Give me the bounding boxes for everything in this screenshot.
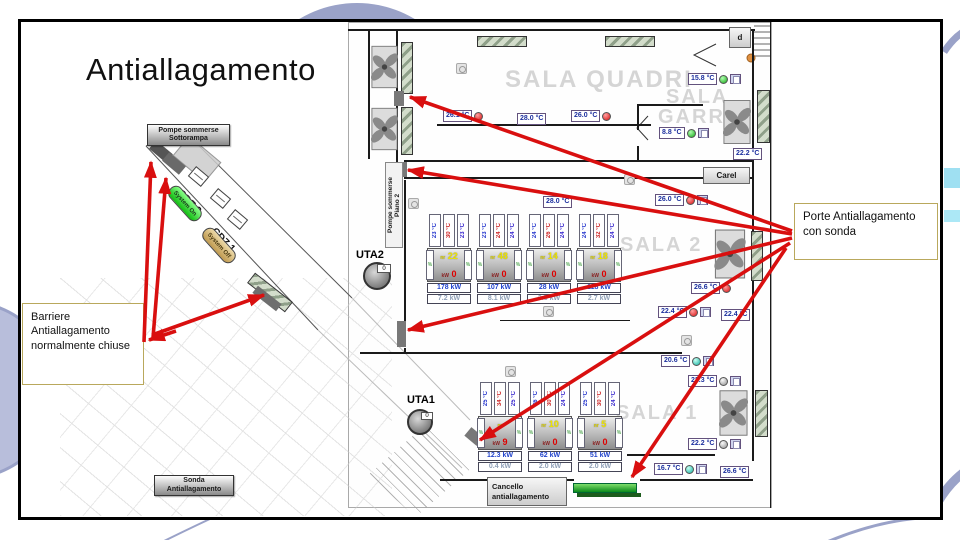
flood-gate-bar xyxy=(573,483,637,493)
status-dot-cyan xyxy=(692,357,701,366)
temperature-value: 22.2 °C xyxy=(733,148,762,160)
fan-pct: % xyxy=(576,250,584,280)
crac-temp-tag: 24 °C xyxy=(558,382,570,415)
crac-temp-tag: 24 °C xyxy=(507,214,519,247)
crac-temp-tag: 25 °C xyxy=(480,382,492,415)
wall-segment xyxy=(404,160,754,162)
wall-segment xyxy=(640,479,753,481)
crac-power-2: 0.4 kW xyxy=(478,462,522,472)
fan-pct: % xyxy=(476,250,484,280)
ack-button xyxy=(730,376,741,386)
crac-unit-sala2: 23 °C24 °C24 °C % % nr 48 kW 0 107 kW 8.… xyxy=(477,214,521,304)
status-dot-red xyxy=(722,284,731,293)
fan-icon xyxy=(371,106,398,152)
fan-pct: % xyxy=(577,418,585,448)
crac-temp-tag: 24 °C xyxy=(557,214,569,247)
uta1-label: UTA1 xyxy=(407,394,435,406)
ack-button xyxy=(730,74,741,84)
wall-segment xyxy=(404,180,406,322)
wall-segment xyxy=(348,29,398,31)
crac-body: % % nr 5 kW 0 xyxy=(578,416,622,450)
quadro-d-plate: d xyxy=(729,27,751,48)
crac-kw-now: kW 9 xyxy=(487,437,513,447)
crac-power-1: 28 kW xyxy=(527,283,571,293)
crac-setpoint: nr 18 xyxy=(586,251,612,261)
device-icon xyxy=(456,63,467,74)
temperature-value: 26.6 °C xyxy=(720,466,749,478)
crac-temp-tag: 24 °C xyxy=(493,214,505,247)
temperature-value: 8.8 °C xyxy=(659,127,685,139)
vent-grille xyxy=(477,36,527,47)
crac-unit-sala2: 24 °C26 °C24 °C % % nr 14 kW 0 28 kW 3.5… xyxy=(527,214,571,304)
wall-segment xyxy=(395,29,755,31)
crac-setpoint: nr 48 xyxy=(486,251,512,261)
wall-segment xyxy=(637,104,639,130)
status-dot-red xyxy=(602,112,611,121)
temperature-value: 26.0 °C xyxy=(655,194,684,206)
crac-temp-tag: 32 °C xyxy=(593,214,605,247)
wall-segment xyxy=(637,146,639,162)
room-watermark: SALA QUADRI xyxy=(505,66,693,94)
fan-pct: % xyxy=(464,250,472,280)
temperature-widget: 22.2 °C xyxy=(688,438,741,450)
temperature-value: 22.2 °C xyxy=(688,438,717,450)
temperature-value: 22.4 °C xyxy=(721,309,750,321)
pompe-piano2-plate: Pompe sommerse Piano 2 xyxy=(385,162,403,248)
wall-segment xyxy=(368,31,370,159)
fan-pct: % xyxy=(527,418,535,448)
door-sensor-block xyxy=(394,91,404,106)
temperature-widget: 26.1 °C xyxy=(443,110,483,122)
crac-unit-sala1: 26 °C30 °C24 °C % % nr 10 kW 0 62 kW 2.0… xyxy=(528,382,572,472)
crac-temp-tag: 24 °C xyxy=(608,382,620,415)
status-dot-red xyxy=(686,196,695,205)
status-dot-red xyxy=(689,308,698,317)
temperature-widget: 26.0 °C xyxy=(655,194,708,206)
crac-kw-now: kW 0 xyxy=(586,269,612,279)
status-dot-green xyxy=(719,75,728,84)
crac-temp-tag: 24 °C xyxy=(529,214,541,247)
ack-button xyxy=(700,307,711,317)
fan-pct: % xyxy=(615,418,623,448)
crac-body: % % nr 10 kW 0 xyxy=(528,416,572,450)
carel-plate: Carel xyxy=(703,167,750,184)
callout-porte: Porte Antiallagamento con sonda xyxy=(794,203,938,260)
crac-temp-tag: 26 °C xyxy=(530,382,542,415)
fan-pct: % xyxy=(514,250,522,280)
crac-temp-tag: 24 °C xyxy=(607,214,619,247)
temperature-value: 20.6 °C xyxy=(661,355,690,367)
temperature-widget: 26.6 °C xyxy=(691,282,731,294)
status-dot-green xyxy=(687,129,696,138)
crac-temp-tag: 26 °C xyxy=(543,214,555,247)
crac-temp-tag: 30 °C xyxy=(594,382,606,415)
vent-grille xyxy=(757,90,770,143)
temperature-value: 15.8 °C xyxy=(688,73,717,85)
fan-pct: % xyxy=(526,250,534,280)
crac-power-1: 107 kW xyxy=(477,283,521,293)
wall-segment xyxy=(360,352,682,354)
device-icon xyxy=(505,366,516,377)
temperature-widget: 20.6 °C xyxy=(661,355,714,367)
crac-setpoint: nr xyxy=(487,419,513,429)
crac-temp-tag: 23 °C xyxy=(457,214,469,247)
crac-body: % % nr 18 kW 0 xyxy=(577,248,621,282)
crac-setpoint: nr 10 xyxy=(537,419,563,429)
crac-power-1: 118 kW xyxy=(577,283,621,293)
crac-body: % % nr 14 kW 0 xyxy=(527,248,571,282)
device-icon xyxy=(408,198,419,209)
crac-kw-now: kW 0 xyxy=(536,269,562,279)
crac-unit-sala1: 25 °C34 °C25 °C % % nr kW 9 12.3 kW 0.4 … xyxy=(478,382,522,472)
crac-temp-tag: 24 °C xyxy=(579,214,591,247)
device-icon xyxy=(543,306,554,317)
slide: { "title": "Antiallagamento", "colors": … xyxy=(0,0,960,540)
status-dot-gray xyxy=(719,377,728,386)
temperature-widget: 22.2 °C xyxy=(733,148,762,160)
crac-power-2: 2.0 kW xyxy=(578,462,622,472)
crac-unit-sala1: 25 °C30 °C24 °C % % nr 5 kW 0 51 kW 2.0 … xyxy=(578,382,622,472)
status-dot-red xyxy=(474,112,483,121)
temperature-value: 28.0 °C xyxy=(543,196,572,208)
status-dot-cyan xyxy=(685,465,694,474)
crac-body: % % nr kW 9 xyxy=(478,416,522,450)
crac-power-1: 51 kW xyxy=(578,451,622,461)
crac-power-2: 8.1 kW xyxy=(477,294,521,304)
crac-temp-tag: 25 °C xyxy=(508,382,520,415)
fan-pct: % xyxy=(477,418,485,448)
temperature-value: 22.3 °C xyxy=(688,375,717,387)
fan-icon xyxy=(714,229,746,279)
crac-power-2: 2.0 kW xyxy=(528,462,572,472)
room-watermark: SALA 1 xyxy=(616,402,698,425)
crac-temp-tag: 23 °C xyxy=(479,214,491,247)
vent-grille xyxy=(401,42,413,94)
temperature-widget: 28.0 °C xyxy=(517,113,546,125)
temperature-value: 26.1 °C xyxy=(443,110,472,122)
room-watermark: GARR xyxy=(658,106,725,129)
crac-body: % % nr 22 kW 0 xyxy=(427,248,471,282)
ack-button xyxy=(697,195,708,205)
vent-grille xyxy=(605,36,655,47)
crac-unit-sala2: 23 °C30 °C23 °C % % nr 22 kW 0 178 kW 7.… xyxy=(427,214,471,304)
fan-icon xyxy=(371,44,398,90)
crac-power-2: 3.5 kW xyxy=(527,294,571,304)
temperature-widget: 22.4 °C xyxy=(721,309,750,321)
wall-segment xyxy=(404,177,754,179)
crac-temp-tag: 30 °C xyxy=(544,382,556,415)
ack-button xyxy=(703,356,714,366)
fan-icon xyxy=(719,388,748,438)
temperature-value: 26.0 °C xyxy=(571,110,600,122)
vent-grille xyxy=(755,390,768,437)
temperature-widget: 26.0 °C xyxy=(571,110,611,122)
wall-segment xyxy=(627,454,715,456)
wall-segment xyxy=(637,104,703,106)
temperature-widget: 8.8 °C xyxy=(659,127,709,139)
vent-grille xyxy=(751,231,763,281)
crac-setpoint: nr 5 xyxy=(587,419,613,429)
door-sensor-block xyxy=(397,321,406,347)
cancello-antiallagamento-plate: Cancello antiallagamento xyxy=(487,477,567,506)
crac-body: % % nr 48 kW 0 xyxy=(477,248,521,282)
vent-grille xyxy=(401,107,413,155)
flood-gate-shadow xyxy=(577,493,641,497)
crac-temp-tag: 30 °C xyxy=(443,214,455,247)
temperature-widget: 22.4 °C xyxy=(658,306,711,318)
crac-power-2: 7.2 kW xyxy=(427,294,471,304)
temperature-widget: 26.6 °C xyxy=(720,466,749,478)
crac-power-1: 178 kW xyxy=(427,283,471,293)
fan-pct: % xyxy=(426,250,434,280)
crac-setpoint: nr 14 xyxy=(536,251,562,261)
fan-icon xyxy=(723,99,751,145)
fan-pct: % xyxy=(564,250,572,280)
crac-unit-sala2: 24 °C32 °C24 °C % % nr 18 kW 0 118 kW 2.… xyxy=(577,214,621,304)
ack-button xyxy=(730,439,741,449)
fan-pct: % xyxy=(614,250,622,280)
room-watermark: SALA 2 xyxy=(620,234,702,257)
wall-segment xyxy=(770,22,771,508)
uta1-value: 0 xyxy=(421,412,433,420)
crac-kw-now: kW 0 xyxy=(436,269,462,279)
uta2-label: UTA2 xyxy=(356,249,384,261)
crac-power-1: 12.3 kW xyxy=(478,451,522,461)
fan-pct: % xyxy=(515,418,523,448)
crac-temp-tag: 23 °C xyxy=(429,214,441,247)
crac-kw-now: kW 0 xyxy=(587,437,613,447)
ack-button xyxy=(696,464,707,474)
callout-barriere: Barriere Antiallagamento normalmente chi… xyxy=(22,303,144,385)
uta2-value: 0 xyxy=(377,264,391,273)
status-dot-gray xyxy=(719,440,728,449)
pompe-sottorampa-plate: Pompe sommerse Sottorampa xyxy=(147,124,230,146)
page-title: Antiallagamento xyxy=(86,52,316,88)
temperature-value: 26.6 °C xyxy=(691,282,720,294)
crac-setpoint: nr 22 xyxy=(436,251,462,261)
crac-power-1: 62 kW xyxy=(528,451,572,461)
crac-temp-tag: 25 °C xyxy=(580,382,592,415)
temperature-value: 16.7 °C xyxy=(654,463,683,475)
temperature-value: 22.4 °C xyxy=(658,306,687,318)
crac-temp-tag: 34 °C xyxy=(494,382,506,415)
crac-power-2: 2.7 kW xyxy=(577,294,621,304)
temperature-widget: 15.8 °C xyxy=(688,73,741,85)
wall-segment xyxy=(500,320,630,321)
sonda-antiallagamento-plate: Sonda Antiallagamento xyxy=(154,475,234,496)
temperature-value: 28.0 °C xyxy=(517,113,546,125)
temperature-widget: 16.7 °C xyxy=(654,463,707,475)
ack-button xyxy=(698,128,709,138)
crac-kw-now: kW 0 xyxy=(537,437,563,447)
fan-pct: % xyxy=(565,418,573,448)
temperature-widget: 28.0 °C xyxy=(543,196,572,208)
device-icon xyxy=(681,335,692,346)
temperature-widget: 22.3 °C xyxy=(688,375,741,387)
device-icon xyxy=(624,174,635,185)
crac-kw-now: kW 0 xyxy=(486,269,512,279)
